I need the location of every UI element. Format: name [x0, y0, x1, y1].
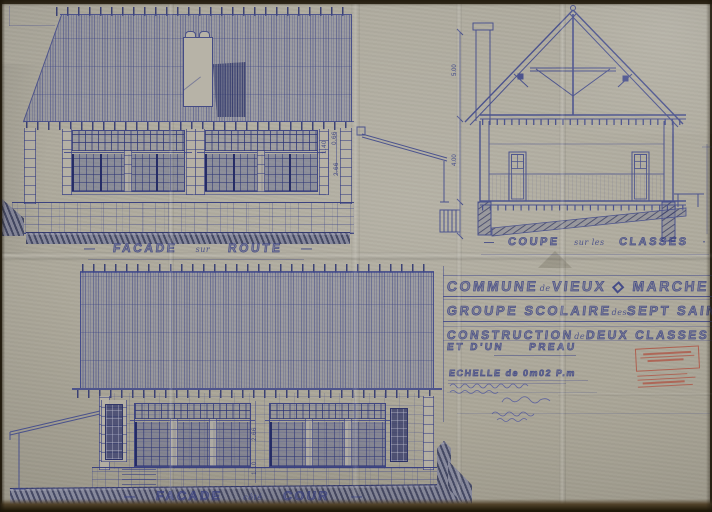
- window-group-2: [269, 403, 386, 467]
- stamp-border-box: [635, 345, 700, 371]
- stone-jamb: [195, 129, 205, 195]
- preau-lean-to: [2, 402, 122, 502]
- sill-line: [196, 194, 326, 195]
- title-rule: [443, 275, 712, 276]
- title-line-1: COMMUNE de VIEUX ◇ MARCHE: [447, 279, 709, 293]
- stone-mullion: [209, 419, 217, 466]
- photo-edge-top: [0, 0, 712, 6]
- window-group-1: [134, 403, 251, 467]
- transom-lights: [205, 131, 317, 151]
- scale-text: ECHELLE de 0m02 P.m: [449, 369, 577, 378]
- ledger-rule: [457, 413, 710, 414]
- chimney: [183, 37, 213, 107]
- dimension-line: [328, 132, 329, 194]
- title-block-border: [443, 266, 444, 422]
- stamp-text-line: [648, 359, 684, 362]
- narrow-window: [390, 408, 408, 462]
- title-rule: [443, 340, 712, 341]
- title-word-small: de: [540, 284, 551, 293]
- title-block: COMMUNE de VIEUX ◇ MARCHE GROUPE SCOLAIR…: [443, 266, 712, 426]
- stone-mullion: [257, 151, 265, 192]
- roof-right-edge: [433, 272, 434, 388]
- title-rule: [443, 299, 712, 300]
- dimension-value: 2.66: [334, 162, 340, 176]
- chimney-cap-right: [199, 31, 210, 38]
- roof-shadow-patch: [213, 62, 246, 117]
- paper-shading: [562, 4, 712, 134]
- paper-shading: [2, 64, 48, 254]
- title-rule: [443, 296, 712, 297]
- title-word: GROUPE SCOLAIRE: [446, 304, 612, 317]
- photo-edge-left: [0, 0, 5, 512]
- sheet-fragment-line: [9, 25, 55, 26]
- approval-stamp: [635, 345, 705, 392]
- elevation-facade-route: 1.40 0.66 2.66 — FACADE sur ROUTE —: [2, 4, 358, 262]
- label-word: COUPE: [508, 237, 561, 248]
- label-word-small: sur les: [574, 238, 605, 247]
- title-rule: [443, 321, 712, 322]
- corner-quoins-right: [423, 396, 434, 470]
- tall-windows: [135, 422, 250, 466]
- photo-edge-bottom: [0, 499, 712, 512]
- label-dash: —: [484, 237, 494, 248]
- roof-slate-hatch: [80, 272, 434, 388]
- chimney-cap-left: [185, 31, 196, 38]
- dimension-value: 2.66: [252, 427, 258, 441]
- title-line-4: ET D'UN PREAU: [447, 343, 577, 353]
- title-line-2: GROUPE SCOLAIRE des SEPT SAINTS: [447, 304, 709, 317]
- rubble-stone-base: [12, 202, 354, 234]
- roof-left-edge: [80, 272, 81, 388]
- coupe-classes-label: — COUPE sur les CLASSES ·: [484, 237, 706, 252]
- title-word: VIEUX ◇ MARCHE: [551, 279, 709, 293]
- band-separator: [265, 420, 390, 421]
- window-band-b: [204, 130, 318, 192]
- stone-jamb: [62, 129, 72, 195]
- stamp-text-line: [637, 376, 695, 380]
- label-word: CLASSES: [618, 237, 689, 248]
- transom-lights: [135, 404, 250, 419]
- title-word: SEPT SAINTS: [626, 304, 712, 317]
- transom-lights: [270, 404, 385, 419]
- band-separator: [130, 420, 255, 421]
- stone-mullion: [124, 151, 132, 192]
- tall-windows: [270, 422, 385, 466]
- blueprint-photo: 1.40 0.66 2.66 — FACADE sur ROUTE —: [0, 0, 712, 512]
- stamp-text-line: [640, 354, 694, 358]
- stamp-text-line: [638, 384, 693, 388]
- title-word: PREAU: [529, 343, 578, 353]
- stone-mullion: [305, 419, 313, 466]
- photo-edge-right: [706, 0, 712, 512]
- drawing-sheet: 1.40 0.66 2.66 — FACADE sur ROUTE —: [2, 4, 710, 505]
- dimension-value: 1.40: [322, 140, 328, 154]
- stamp-lower-lines: [636, 372, 705, 388]
- handwritten-notes: [447, 380, 607, 424]
- roof-ridge-line: [60, 14, 352, 15]
- title-rule: [443, 326, 712, 327]
- title-word-small: des: [612, 308, 627, 317]
- dimension-value: 0.66: [332, 131, 338, 145]
- sheet-fragment-line: [9, 6, 10, 26]
- fold-crease-horizontal: [2, 252, 712, 261]
- fold-crease-horizontal: [558, 393, 712, 396]
